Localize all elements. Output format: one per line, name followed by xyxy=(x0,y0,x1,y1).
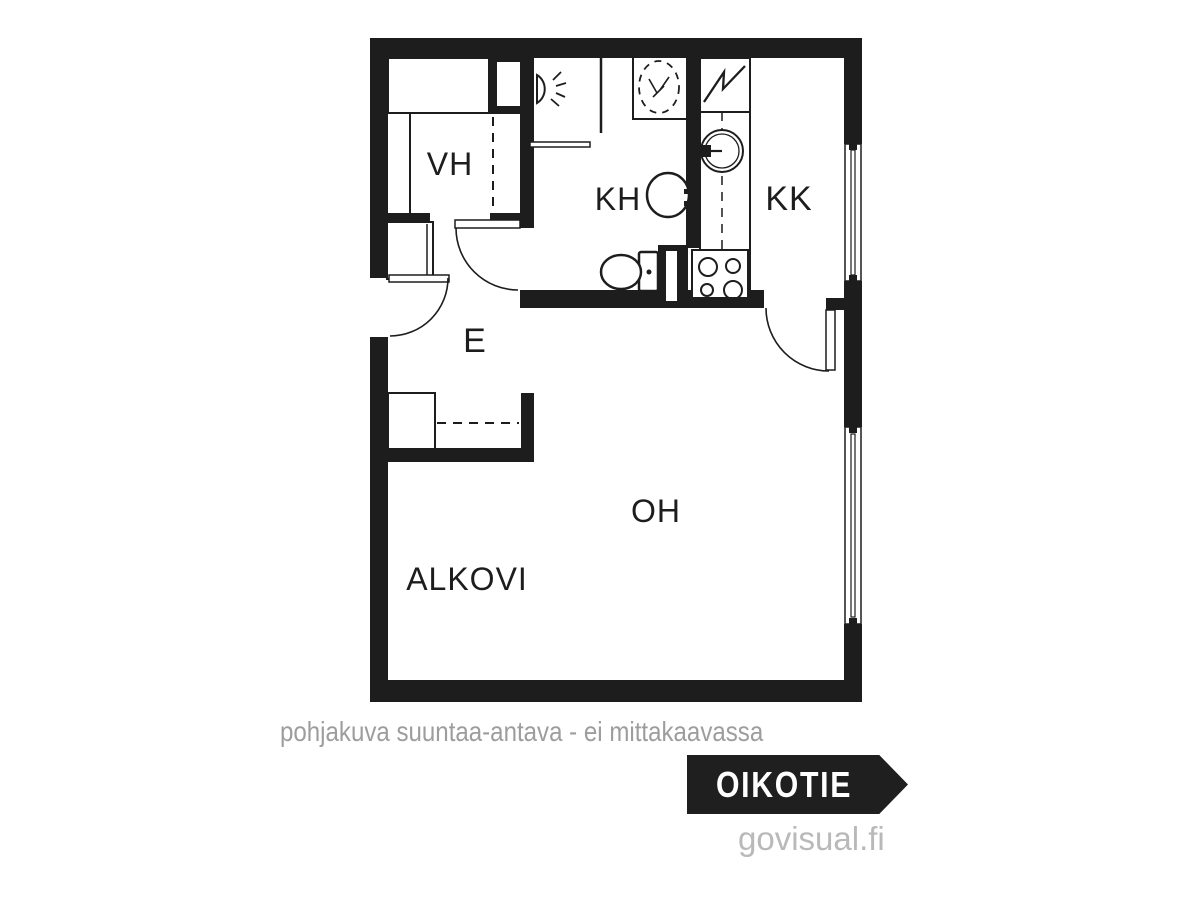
oikotie-badge: OIKOTIE xyxy=(687,755,908,814)
room-label-oh: OH xyxy=(631,493,681,529)
wall-e-closet-stub xyxy=(521,393,534,450)
kk-tap-nub-bottom xyxy=(694,153,699,157)
duct-vh-kh xyxy=(497,62,521,106)
wall-bottom xyxy=(370,680,862,702)
shower-ray-4 xyxy=(551,99,559,106)
disclaimer-text: pohjakuva suuntaa-antava - ei mittakaava… xyxy=(280,716,763,748)
floorplan-page: VHKHKKEOHALKOVI pohjakuva suuntaa-antava… xyxy=(0,0,1200,900)
electric-panel xyxy=(700,58,750,112)
wall-kh-left xyxy=(520,56,534,224)
oikotie-badge-label: OIKOTIE xyxy=(716,764,852,806)
window-oh-nub-bottom xyxy=(849,618,857,624)
wall-right-lower xyxy=(844,624,862,702)
kh-sink-icon xyxy=(647,173,689,217)
credit-text: govisual.fi xyxy=(738,820,885,858)
kh-door-leaf xyxy=(455,220,520,228)
wall-kk-door-stub xyxy=(826,298,844,310)
closet-e-box xyxy=(388,393,435,449)
entry-door-arc xyxy=(390,278,448,336)
wall-top xyxy=(370,38,862,58)
window-oh-nub-top xyxy=(849,427,857,433)
floor-plan: VHKHKKEOHALKOVI xyxy=(0,0,1200,900)
window-kk-nub-top xyxy=(849,144,857,150)
shower-ray-3 xyxy=(556,93,565,97)
cabinet-vh-top xyxy=(388,58,489,113)
room-label-kh: KH xyxy=(595,181,641,217)
kh-door-arc xyxy=(456,228,518,290)
wall-right-upper xyxy=(844,38,862,144)
duct-kh-kk-slot xyxy=(666,251,677,301)
kk-tap-nub-top xyxy=(694,146,699,150)
kk-tap-body xyxy=(699,145,711,157)
shower-ray-1 xyxy=(553,72,561,80)
toilet-bowl-icon xyxy=(601,255,641,289)
shower-ray-2 xyxy=(556,83,566,86)
wall-right-middle xyxy=(844,281,862,427)
window-oh-mullion xyxy=(851,434,855,617)
kh-towel-rail xyxy=(530,142,590,147)
room-label-kk: KK xyxy=(765,180,812,218)
kk-door-leaf xyxy=(826,310,835,370)
cabinet-e-upper xyxy=(387,222,433,279)
entry-door-leaf xyxy=(389,275,449,282)
room-label-e: E xyxy=(463,322,487,360)
wall-kh-kk xyxy=(686,56,700,248)
wall-left-lower xyxy=(370,337,388,702)
wall-e-closet-bottom xyxy=(388,448,534,462)
room-label-vh: VH xyxy=(427,146,473,182)
wall-left-upper xyxy=(370,38,388,278)
toilet-button xyxy=(647,270,652,275)
window-kk-nub-bottom xyxy=(849,275,857,281)
kk-door-arc xyxy=(766,308,829,371)
room-label-alkovi: ALKOVI xyxy=(406,561,528,597)
shower-head-icon xyxy=(537,75,545,103)
window-kk-mullion xyxy=(851,150,855,275)
